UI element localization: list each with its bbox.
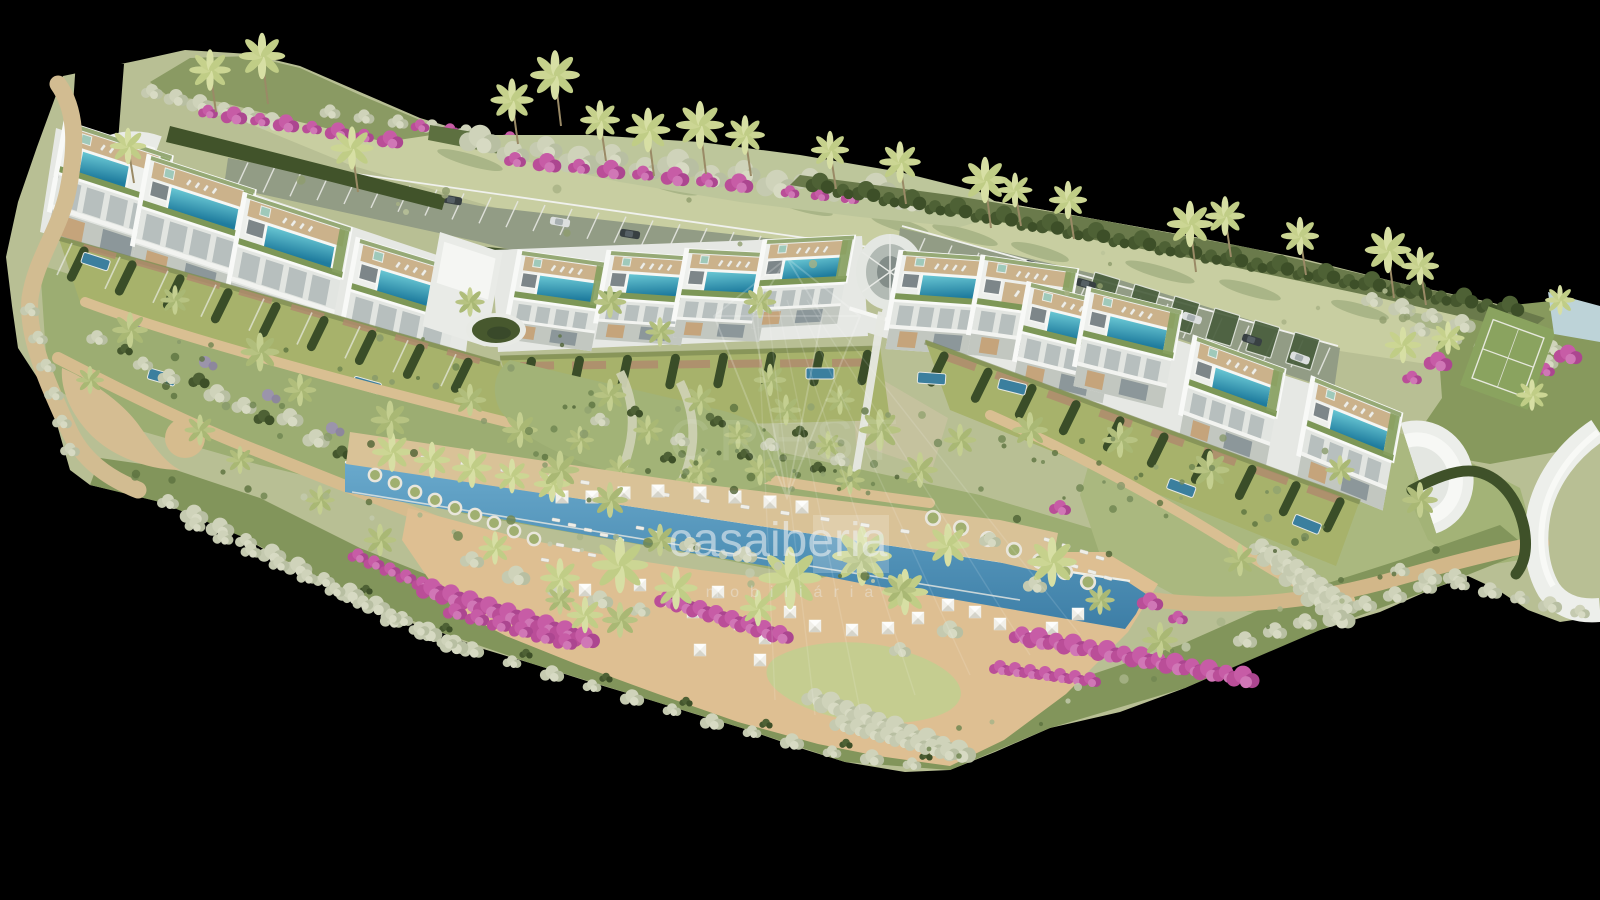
- svg-text:mobiliária: mobiliária: [706, 584, 884, 601]
- svg-text:CREST: CREST: [669, 408, 906, 473]
- svg-text:casaiberia: casaiberia: [669, 514, 888, 567]
